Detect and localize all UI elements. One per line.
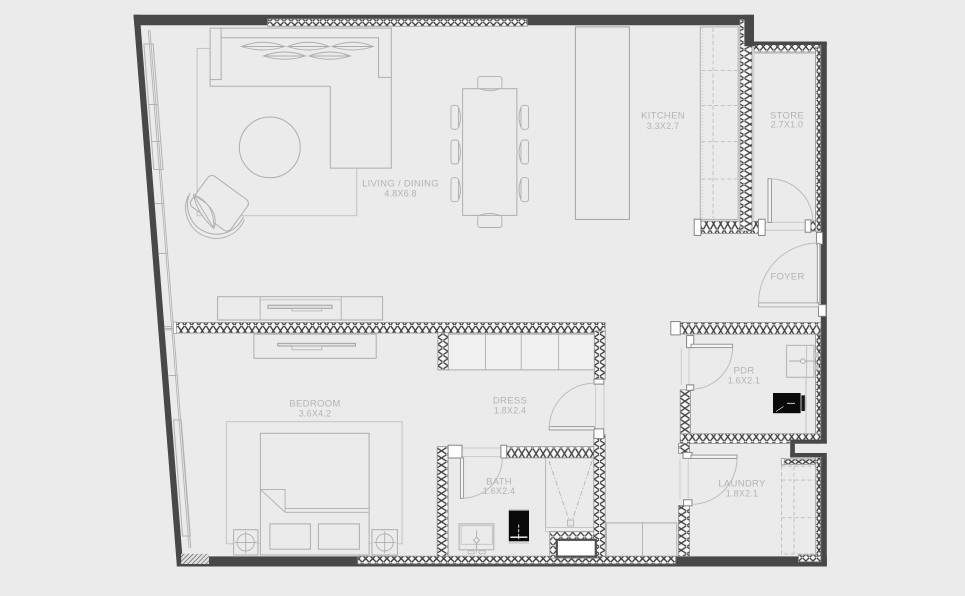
svg-text:2.7X1.0: 2.7X1.0 [771, 120, 803, 130]
svg-text:1.8X2.1: 1.8X2.1 [726, 489, 758, 499]
svg-text:3.3X2.7: 3.3X2.7 [647, 121, 679, 131]
svg-text:4.8X6.8: 4.8X6.8 [384, 189, 416, 199]
svg-text:3.6X4.2: 3.6X4.2 [299, 409, 331, 419]
svg-text:1.8X2.4: 1.8X2.4 [494, 406, 526, 416]
svg-text:KITCHEN: KITCHEN [641, 111, 685, 122]
svg-text:1.6X2.1: 1.6X2.1 [728, 376, 760, 386]
svg-text:FOYER: FOYER [770, 272, 804, 283]
svg-text:1.6X2.4: 1.6X2.4 [483, 486, 515, 496]
